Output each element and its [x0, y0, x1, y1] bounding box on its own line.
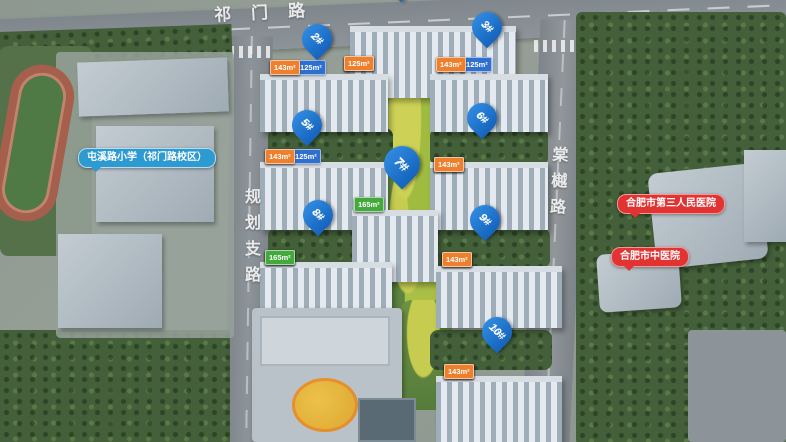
unit-area-tag: 143m²: [434, 157, 464, 172]
building-pin-2[interactable]: 2# 17F: [302, 24, 332, 66]
pin-label: 5# 17F: [286, 104, 328, 146]
unit-area-tag: 143m²: [444, 364, 474, 379]
crosswalk: [230, 46, 270, 58]
building-pin-6[interactable]: 6# 17F: [467, 103, 497, 145]
road-label-tangyue: 棠樾路: [542, 146, 569, 225]
site-plan-map: 祁门路 规划支路 棠樾路 125m² 165m² 195m² 125m² 143…: [0, 0, 786, 442]
kindergarten-playground: [292, 378, 358, 432]
unit-area-tag: 165m²: [354, 197, 384, 212]
school-building: [77, 57, 229, 116]
building-pin-1[interactable]: 1#: [386, 0, 416, 8]
pin-label: 2# 17F: [296, 18, 338, 60]
unit-area-tag: 143m²: [436, 57, 466, 72]
amenity-court: [358, 398, 416, 442]
poi-label-hospital-third-peoples[interactable]: 合肥市第三人民医院: [617, 194, 725, 214]
building-10: [436, 376, 562, 442]
pin-label: 6# 17F: [461, 97, 503, 139]
unit-area-tag: 125m²: [344, 56, 374, 71]
unit-area-tag: 143m²: [270, 60, 300, 75]
building-pin-9[interactable]: 9# 17F: [470, 205, 500, 247]
pin-label: 7# 26F: [377, 139, 428, 190]
pin-label: 3# 17F: [466, 6, 508, 48]
building-pin-7[interactable]: 7# 26F: [384, 146, 420, 196]
unit-area-tag: 143m²: [265, 149, 295, 164]
kindergarten-roof: [260, 316, 390, 366]
parking-lot: [688, 330, 786, 442]
building-pin-5[interactable]: 5# 17F: [292, 110, 322, 152]
pin-label: 1#: [380, 0, 422, 2]
crosswalk: [534, 40, 578, 52]
pin-label: 8# 10F: [297, 194, 339, 236]
building-pin-3[interactable]: 3# 17F: [472, 12, 502, 54]
poi-label-hospital-tcm[interactable]: 合肥市中医院: [611, 247, 689, 267]
unit-area-tag: 143m²: [442, 252, 472, 267]
building-pin-10[interactable]: 10# 10F: [482, 317, 512, 359]
school-building: [58, 234, 162, 328]
unit-area-tag: 165m²: [265, 250, 295, 265]
tree-area-bottom-left: [0, 330, 230, 442]
building-pin-8[interactable]: 8# 10F: [303, 200, 333, 242]
road-label-planned-branch: 规划支路: [238, 188, 262, 292]
poi-label-school[interactable]: 屯溪路小学（祁门路校区）: [78, 148, 216, 168]
school-building: [96, 126, 214, 222]
pin-label: 10# 10F: [476, 311, 518, 353]
hospital-building: [744, 150, 786, 242]
pin-label: 9# 17F: [464, 199, 506, 241]
